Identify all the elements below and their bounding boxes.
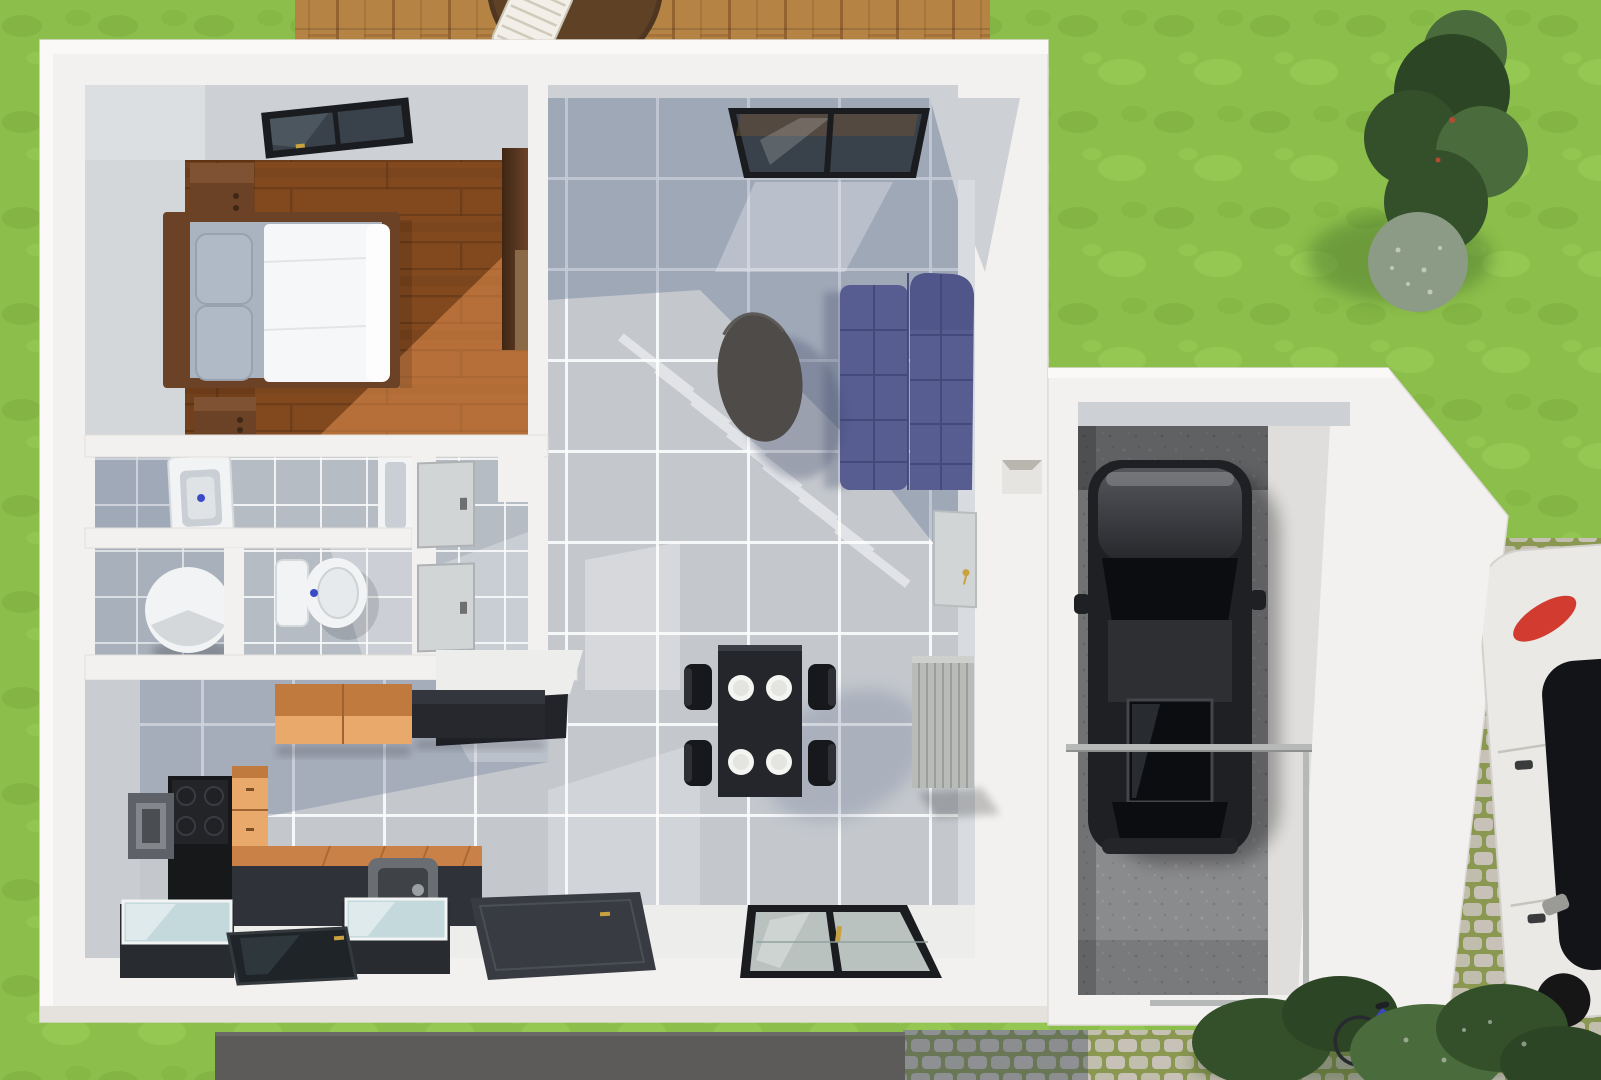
wall-bath-split: [85, 528, 412, 548]
wall-bottom-face: [40, 1006, 1048, 1022]
garage-south-shade: [1078, 940, 1268, 995]
dining-chair: [808, 740, 836, 786]
dining-chair: [684, 740, 712, 786]
tree-berries: [1449, 117, 1455, 123]
dining-chair: [684, 664, 712, 710]
bed-duvet-roll: [366, 224, 390, 382]
interior-door: [418, 461, 474, 547]
car-mirror-left: [1074, 594, 1090, 614]
nightstand-south: [194, 397, 256, 435]
hall-closet: [498, 452, 544, 502]
room-bathroom: [95, 454, 412, 539]
wall-cabinet-black: [412, 690, 545, 749]
room-wc: [244, 548, 412, 655]
wall-left-face: [40, 40, 53, 1022]
toilet-button: [310, 589, 318, 597]
floor-plan-render: [0, 0, 1601, 1080]
car-windshield: [1102, 558, 1238, 622]
toilet-cistern: [276, 560, 308, 626]
wardrobe-side-panel: [515, 250, 528, 350]
room-bedroom: [85, 85, 528, 435]
path-edge: [215, 1032, 905, 1036]
car-mirror-right: [1250, 590, 1266, 610]
bed-pillow: [196, 234, 252, 304]
drawer-unit-orange: [232, 766, 268, 854]
room-utility: [95, 548, 232, 664]
bedroom-wall-face-light: [85, 85, 205, 160]
wall-utility-wc: [224, 548, 244, 655]
living-north-wall-face: [548, 85, 958, 98]
bathtub-basin: [385, 462, 406, 528]
car-trunk: [1102, 838, 1238, 854]
door-handle: [460, 602, 467, 614]
wall-top-face: [40, 40, 1048, 54]
dining-chair: [808, 664, 836, 710]
wall-niche: [1002, 460, 1042, 494]
paving-house-shadow: [903, 1030, 1088, 1080]
tree-berries: [1436, 158, 1441, 163]
sun-patch-center: [585, 542, 680, 690]
bed-duvet: [264, 224, 380, 382]
garage-black-car: [1074, 460, 1280, 864]
door-handle: [1515, 760, 1534, 770]
nightstand-north: [190, 163, 254, 220]
doormat-latch: [600, 912, 610, 917]
window-dining-south: [740, 905, 942, 978]
doormat-south: [470, 892, 656, 980]
gravel-path: [215, 1032, 905, 1080]
bed-pillow: [196, 306, 252, 380]
wall-bedroom-south: [85, 435, 548, 457]
corner-sofa: [840, 273, 974, 490]
scene-canvas: [0, 0, 1601, 1080]
car-rear-window: [1112, 802, 1228, 840]
sofa-chaise: [910, 273, 974, 330]
room-garage: [1048, 368, 1508, 1025]
path-surface: [215, 1032, 905, 1080]
appliance-glass-top-right: [342, 899, 450, 974]
appliance-gray-box: [128, 793, 174, 859]
door-handle: [1527, 913, 1546, 923]
car-roof: [1108, 620, 1232, 702]
double-bed: [163, 212, 412, 388]
garage-top-edge: [1048, 368, 1395, 378]
hood-highlight: [1106, 472, 1234, 486]
washbasin: [168, 454, 234, 539]
counter-worktop: [232, 846, 482, 868]
door-handle: [460, 498, 467, 510]
appliance-glass-top-left: [120, 901, 234, 978]
dining-table: [718, 645, 802, 797]
table-edge-highlight: [718, 645, 802, 651]
floor-glass-panel: [228, 928, 356, 984]
garage-north-wall-face: [1078, 402, 1350, 426]
entry-door-garage-side: [934, 511, 976, 607]
bed-shadow: [400, 220, 412, 388]
shrub-sage: [1368, 212, 1468, 312]
interior-door: [418, 563, 474, 651]
toilet-seat: [318, 568, 358, 618]
sink-faucet: [412, 884, 424, 896]
panel-latch: [334, 936, 344, 941]
window-living-north: [728, 108, 930, 178]
